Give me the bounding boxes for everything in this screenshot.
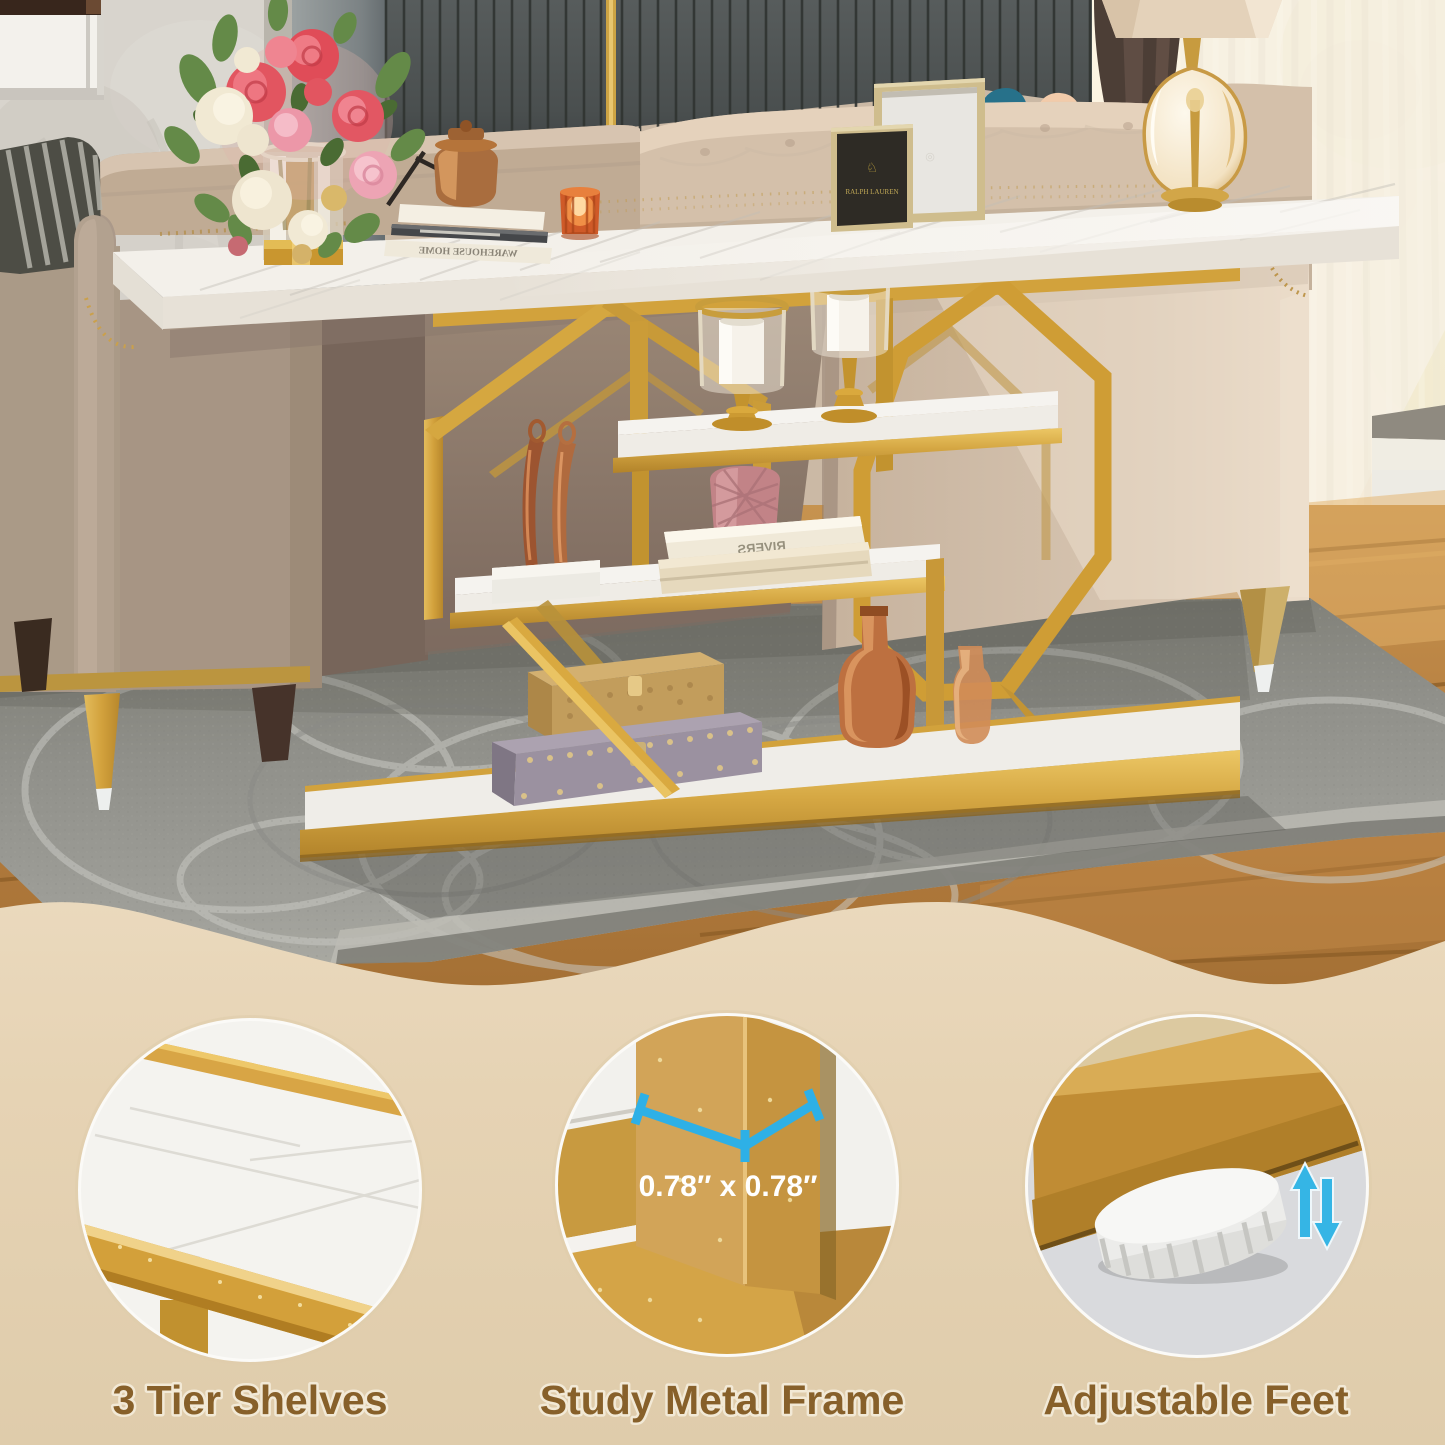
svg-text:0.78″ x 0.78″: 0.78″ x 0.78″ [639, 1170, 818, 1203]
svg-text:Study Metal Frame: Study Metal Frame [540, 1377, 905, 1423]
svg-text:RALPH LAUREN: RALPH LAUREN [845, 188, 898, 196]
svg-text:Adjustable Feet: Adjustable Feet [1043, 1377, 1349, 1423]
svg-text:◎: ◎ [925, 151, 935, 163]
svg-text:♘: ♘ [866, 160, 878, 175]
svg-text:3 Tier Shelves: 3 Tier Shelves [112, 1377, 387, 1423]
